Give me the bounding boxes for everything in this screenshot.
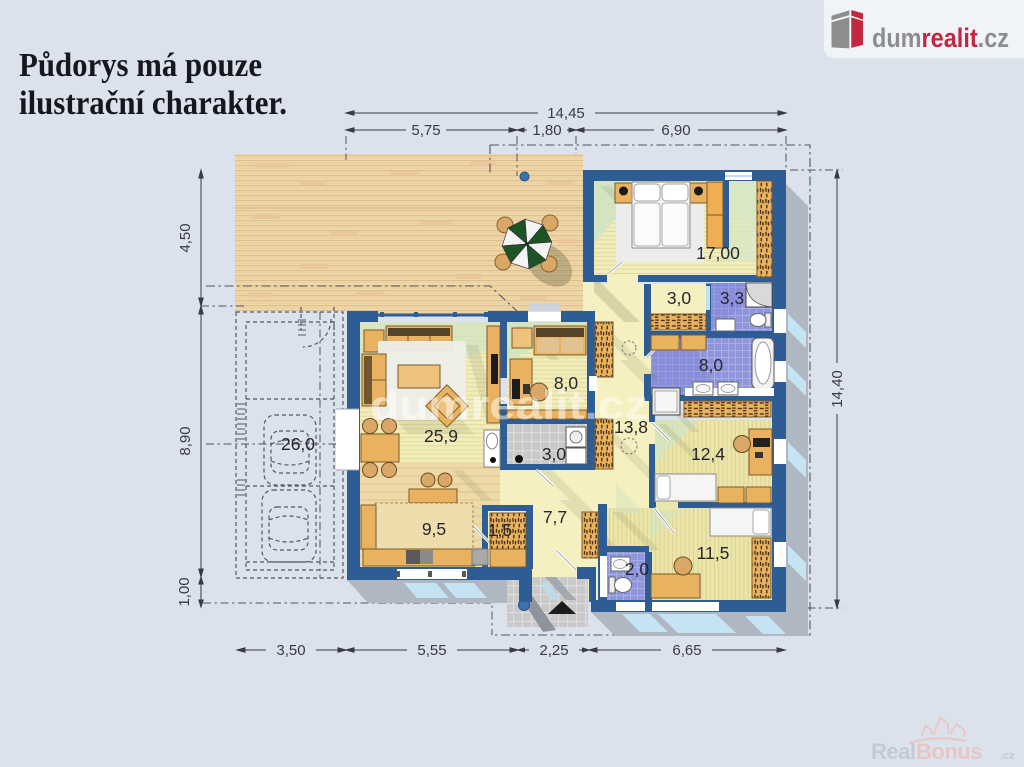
svg-text:14,45: 14,45 <box>547 105 585 122</box>
svg-text:dumrealit.cz: dumrealit.cz <box>370 382 648 428</box>
svg-text:11,5: 11,5 <box>697 543 730 563</box>
svg-text:26,0: 26,0 <box>281 434 315 454</box>
svg-text:4,50: 4,50 <box>177 223 194 252</box>
svg-text:3,0: 3,0 <box>667 288 692 308</box>
svg-text:13,8: 13,8 <box>614 417 648 437</box>
svg-text:Real: Real <box>871 739 915 764</box>
svg-text:1,80: 1,80 <box>532 122 561 139</box>
svg-text:6,65: 6,65 <box>672 642 701 659</box>
svg-text:2,25: 2,25 <box>539 642 568 659</box>
svg-text:2,0: 2,0 <box>625 559 650 579</box>
svg-text:8,0: 8,0 <box>699 355 724 375</box>
svg-text:ilustrační charakter.: ilustrační charakter. <box>19 85 287 122</box>
svg-text:dumrealit.cz: dumrealit.cz <box>872 23 1009 53</box>
svg-text:3,3: 3,3 <box>720 288 744 308</box>
svg-text:.cz: .cz <box>1000 750 1015 762</box>
svg-text:8,0: 8,0 <box>554 373 579 393</box>
svg-text:9,5: 9,5 <box>422 519 446 539</box>
svg-text:6,90: 6,90 <box>661 122 690 139</box>
svg-text:17,00: 17,00 <box>696 243 740 263</box>
svg-text:12,4: 12,4 <box>691 444 725 464</box>
svg-text:5,55: 5,55 <box>417 642 446 659</box>
svg-text:8,90: 8,90 <box>177 426 194 455</box>
svg-text:14,40: 14,40 <box>829 370 846 408</box>
svg-text:1,5: 1,5 <box>488 520 512 540</box>
svg-text:Bonus: Bonus <box>916 739 982 764</box>
svg-text:1,00: 1,00 <box>176 577 193 606</box>
svg-text:Půdorys má pouze: Půdorys má pouze <box>19 47 262 84</box>
svg-text:3,0: 3,0 <box>542 444 567 464</box>
svg-text:25,9: 25,9 <box>424 426 458 446</box>
svg-text:3,50: 3,50 <box>276 642 305 659</box>
svg-text:5,75: 5,75 <box>411 122 440 139</box>
svg-text:7,7: 7,7 <box>543 507 567 527</box>
